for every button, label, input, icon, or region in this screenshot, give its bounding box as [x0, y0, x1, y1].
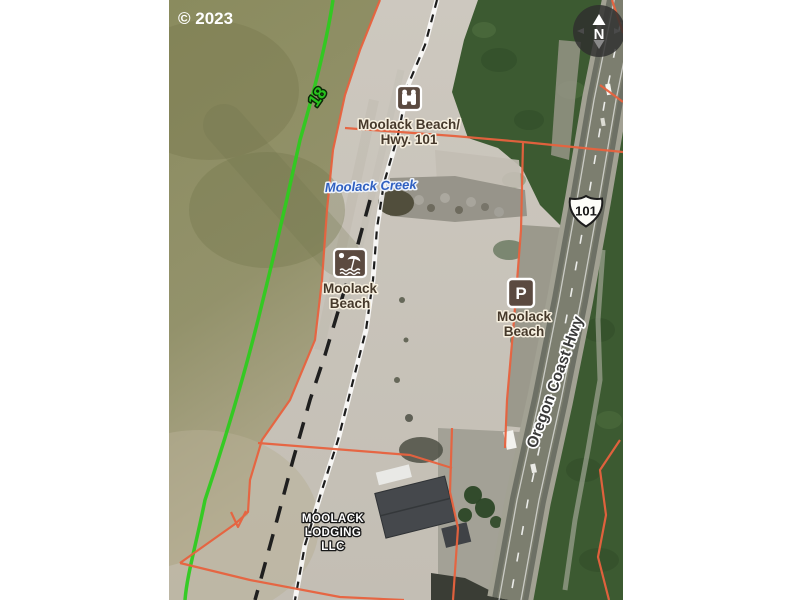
lodging-label-line1: MOOLACK	[302, 513, 365, 525]
copyright-text: © 2023	[178, 9, 233, 28]
lodging-label-line3: LLC	[321, 541, 345, 553]
map-viewport: P 101 N © 2023 18 Moolack Beach/ Hwy. 10…	[0, 0, 800, 600]
parking-label-line1: Moolack	[497, 309, 552, 324]
parking-label-line2: Beach	[504, 324, 545, 339]
viewpoint-label-line2: Hwy. 101	[381, 132, 438, 147]
viewpoint-icon	[397, 86, 421, 110]
map-canvas[interactable]: P 101 N © 2023 18 Moolack Beach/ Hwy. 10…	[169, 0, 623, 600]
beach-icon	[334, 249, 366, 277]
parking-icon-letter: P	[515, 284, 526, 303]
beach-label-line2: Beach	[330, 296, 371, 311]
north-compass: N	[573, 5, 623, 57]
compass-north-label: N	[594, 26, 605, 43]
shield-route-number: 101	[575, 204, 597, 219]
viewpoint-label-line1: Moolack Beach/	[358, 117, 460, 132]
beach-label-line1: Moolack	[323, 281, 378, 296]
lodging-label-line2: LODGING	[305, 527, 361, 539]
parking-icon: P	[508, 279, 534, 307]
